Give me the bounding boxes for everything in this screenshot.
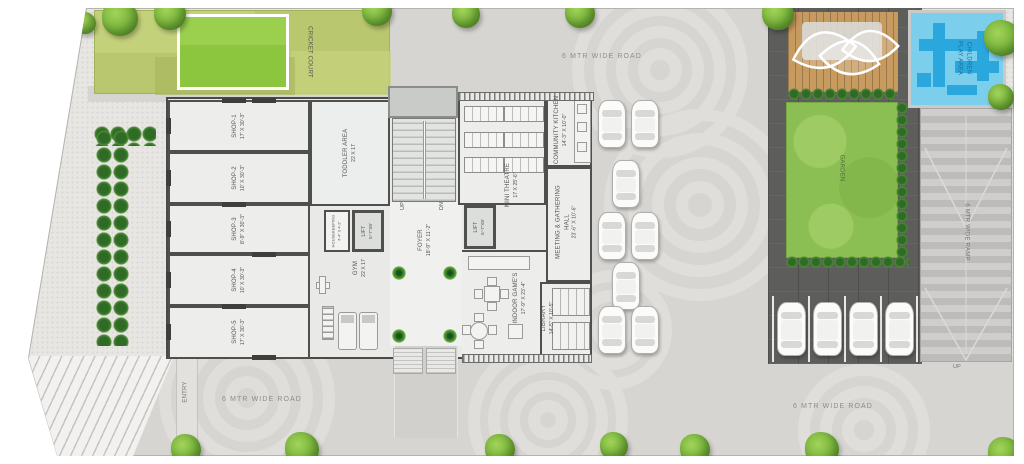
entrance-steps [426,348,456,374]
tree [600,432,628,460]
tree [74,12,96,34]
car-roof [616,280,636,294]
games-long-table [468,256,530,270]
kitchen-counter [574,99,591,163]
gym-ladder [322,306,334,340]
theatre-seat-row [464,157,504,173]
parking-divider [772,296,774,362]
gym-weight-bench [319,276,326,294]
tree [102,0,138,36]
car-roof [635,230,655,244]
mini-theatre-label: MINI THEATRE17 X 25'-6" [504,163,520,207]
car-rear-window [817,341,838,348]
tree [988,84,1014,110]
games-round-table [470,322,488,340]
parked-car [849,302,878,356]
tree [988,437,1020,464]
parked-car [598,100,626,148]
games-table [484,286,500,302]
window-strip [462,354,592,363]
tree [565,0,595,28]
staircase [392,118,456,202]
car-rear-window [602,245,622,252]
parked-car [885,302,914,356]
court-inner-patch [180,17,286,45]
parking-divider [916,296,918,362]
tree [762,0,794,30]
stairs-up-label: UP [400,202,408,210]
kitchen-appliance [577,104,587,114]
toddler-area-label: TODDLER AREA22 X 17 [342,129,358,178]
entrance-steps [393,348,423,374]
kitchen-appliance [577,122,587,132]
car-roof [602,118,622,132]
shop-door [252,355,276,360]
parked-car [631,100,659,148]
shop-door [252,98,276,103]
car-rear-window [602,133,622,140]
parking-divider [880,296,882,362]
cricket-court [94,10,390,94]
car-rear-window [781,341,802,348]
library-label: LIBRARY14'-5" X 10'-5" [540,302,556,335]
car-rear-window [853,341,874,348]
tree [154,0,186,30]
car-windshield [616,170,636,177]
hedge-column [896,102,909,258]
games-chair [487,277,497,286]
lift-left-label: LIFT5'-7"X8' [361,223,375,239]
parked-car [631,212,659,260]
shade-sails [784,8,908,96]
parked-car [631,306,659,354]
entry-label: ENTRY [182,381,191,402]
shop-label: SHOP-410' X 30'-3" [231,267,247,293]
car-roof [635,118,655,132]
stairs-dn-label: DN [439,202,447,210]
car-windshield [817,312,838,319]
children-play-label: CHILDRENPLAY AREA [955,41,972,75]
car-rear-window [616,295,636,302]
car-windshield [616,272,636,279]
car-windshield [635,222,655,229]
parked-car [598,212,626,260]
shop-label: SHOP-210' X 30'-3" [231,165,247,191]
ramp-up-label: UP [953,364,961,372]
treadmill-belt [341,315,354,323]
meeting-hall-label: MEETING & GATHERINGHALL23'-6" X 10'-6" [555,185,580,259]
car-rear-window [889,341,910,348]
site-plan: CRICKET COURT SHOP-117' X 30'-3" SHOP-21… [0,0,1024,464]
car-windshield [602,316,622,323]
games-chair [488,325,497,335]
games-chair [500,289,509,299]
shop-door [166,324,171,340]
car-roof [781,320,802,340]
window-strip [458,92,594,101]
tree [285,432,319,464]
ramp-label: 6 MTR WIDE RAMP [962,203,971,260]
car-windshield [889,312,910,319]
road-label-bottom-left: 6 MTR WIDE ROAD [222,395,302,405]
stair-rail [423,121,426,199]
parking-divider [808,296,810,362]
car-rear-window [635,339,655,346]
car-roof [602,230,622,244]
shop-door [166,272,171,288]
tree [805,432,839,464]
car-rear-window [616,193,636,200]
planter-hedge [96,130,130,346]
shop-door [222,304,246,309]
car-rear-window [635,245,655,252]
foyer-plant [443,329,457,343]
gym-treadmill [359,312,378,350]
court-inner-green [177,14,289,90]
games-chair [462,325,471,335]
theatre-seat-row [464,132,504,148]
car-windshield [602,222,622,229]
parked-car [612,160,640,208]
foyer-plant [392,266,406,280]
car-roof [817,320,838,340]
shop-label: SHOP-517' X 30'-3" [231,319,247,345]
theatre-seat-row [464,106,504,122]
car-windshield [853,312,874,319]
shop-door [222,202,246,207]
site-boundary: CRICKET COURT SHOP-117' X 30'-3" SHOP-21… [0,0,1024,464]
parking-divider [844,296,846,362]
housekeeping-label: HOUSEKEEPING4'-4" X 4'-2" [332,215,343,248]
hedge-row [786,256,909,269]
car-rear-window [602,339,622,346]
shop-label: SHOP-117' X 30'-3" [231,113,247,139]
shop-label: SHOP-38'-9" X 30'-3" [231,214,247,244]
theatre-seat-row [504,106,544,122]
treadmill-belt [362,315,375,323]
indoor-games-label: INDOOR GAME'S17'-9" X 23'-4" [512,272,528,323]
car-roof [602,324,622,338]
gym-treadmill [338,312,357,350]
parked-car [777,302,806,356]
car-roof [616,178,636,192]
car-roof [889,320,910,340]
car-windshield [635,110,655,117]
entrance-canopy [388,86,458,118]
library-table [552,322,590,350]
games-chair [474,340,484,349]
games-chair [487,302,497,311]
games-chair [474,289,483,299]
car-windshield [602,110,622,117]
library-table [552,288,590,316]
shop-door [252,252,276,257]
kitchen-appliance [577,142,587,152]
foyer-plant [443,266,457,280]
tree [485,434,515,464]
shop-door [166,118,171,134]
foyer-label: FOYER18'-9" X 11'-2" [417,224,433,256]
shop-door [166,170,171,186]
tree [984,20,1020,56]
car-roof [635,324,655,338]
shop-door [166,221,171,237]
foyer-plant [392,329,406,343]
games-table [508,324,523,339]
gym-label: GYM22 X 17 [352,259,368,277]
garden-label: GARDEN [837,155,846,182]
car-windshield [781,312,802,319]
car-windshield [635,316,655,323]
parked-car [598,306,626,354]
tree [171,434,201,464]
games-chair [474,313,484,322]
shop-door [222,98,246,103]
road-label-bottom-right: 6 MTR WIDE ROAD [793,402,873,412]
tree [680,434,710,464]
parked-car [813,302,842,356]
community-kitchen-label: COMMUNITY KITCHEN14'-3" X 10'-0" [553,96,569,164]
tree [452,0,480,28]
road-label-top: 6 MTR WIDE ROAD [562,52,642,62]
parked-car [612,262,640,310]
lift-right-label: LIFT5'-7"X8' [473,219,487,235]
theatre-seat-row [504,132,544,148]
cricket-court-label: CRICKET COURT [305,26,314,78]
car-roof [853,320,874,340]
car-rear-window [635,133,655,140]
hedge-row [788,88,898,101]
